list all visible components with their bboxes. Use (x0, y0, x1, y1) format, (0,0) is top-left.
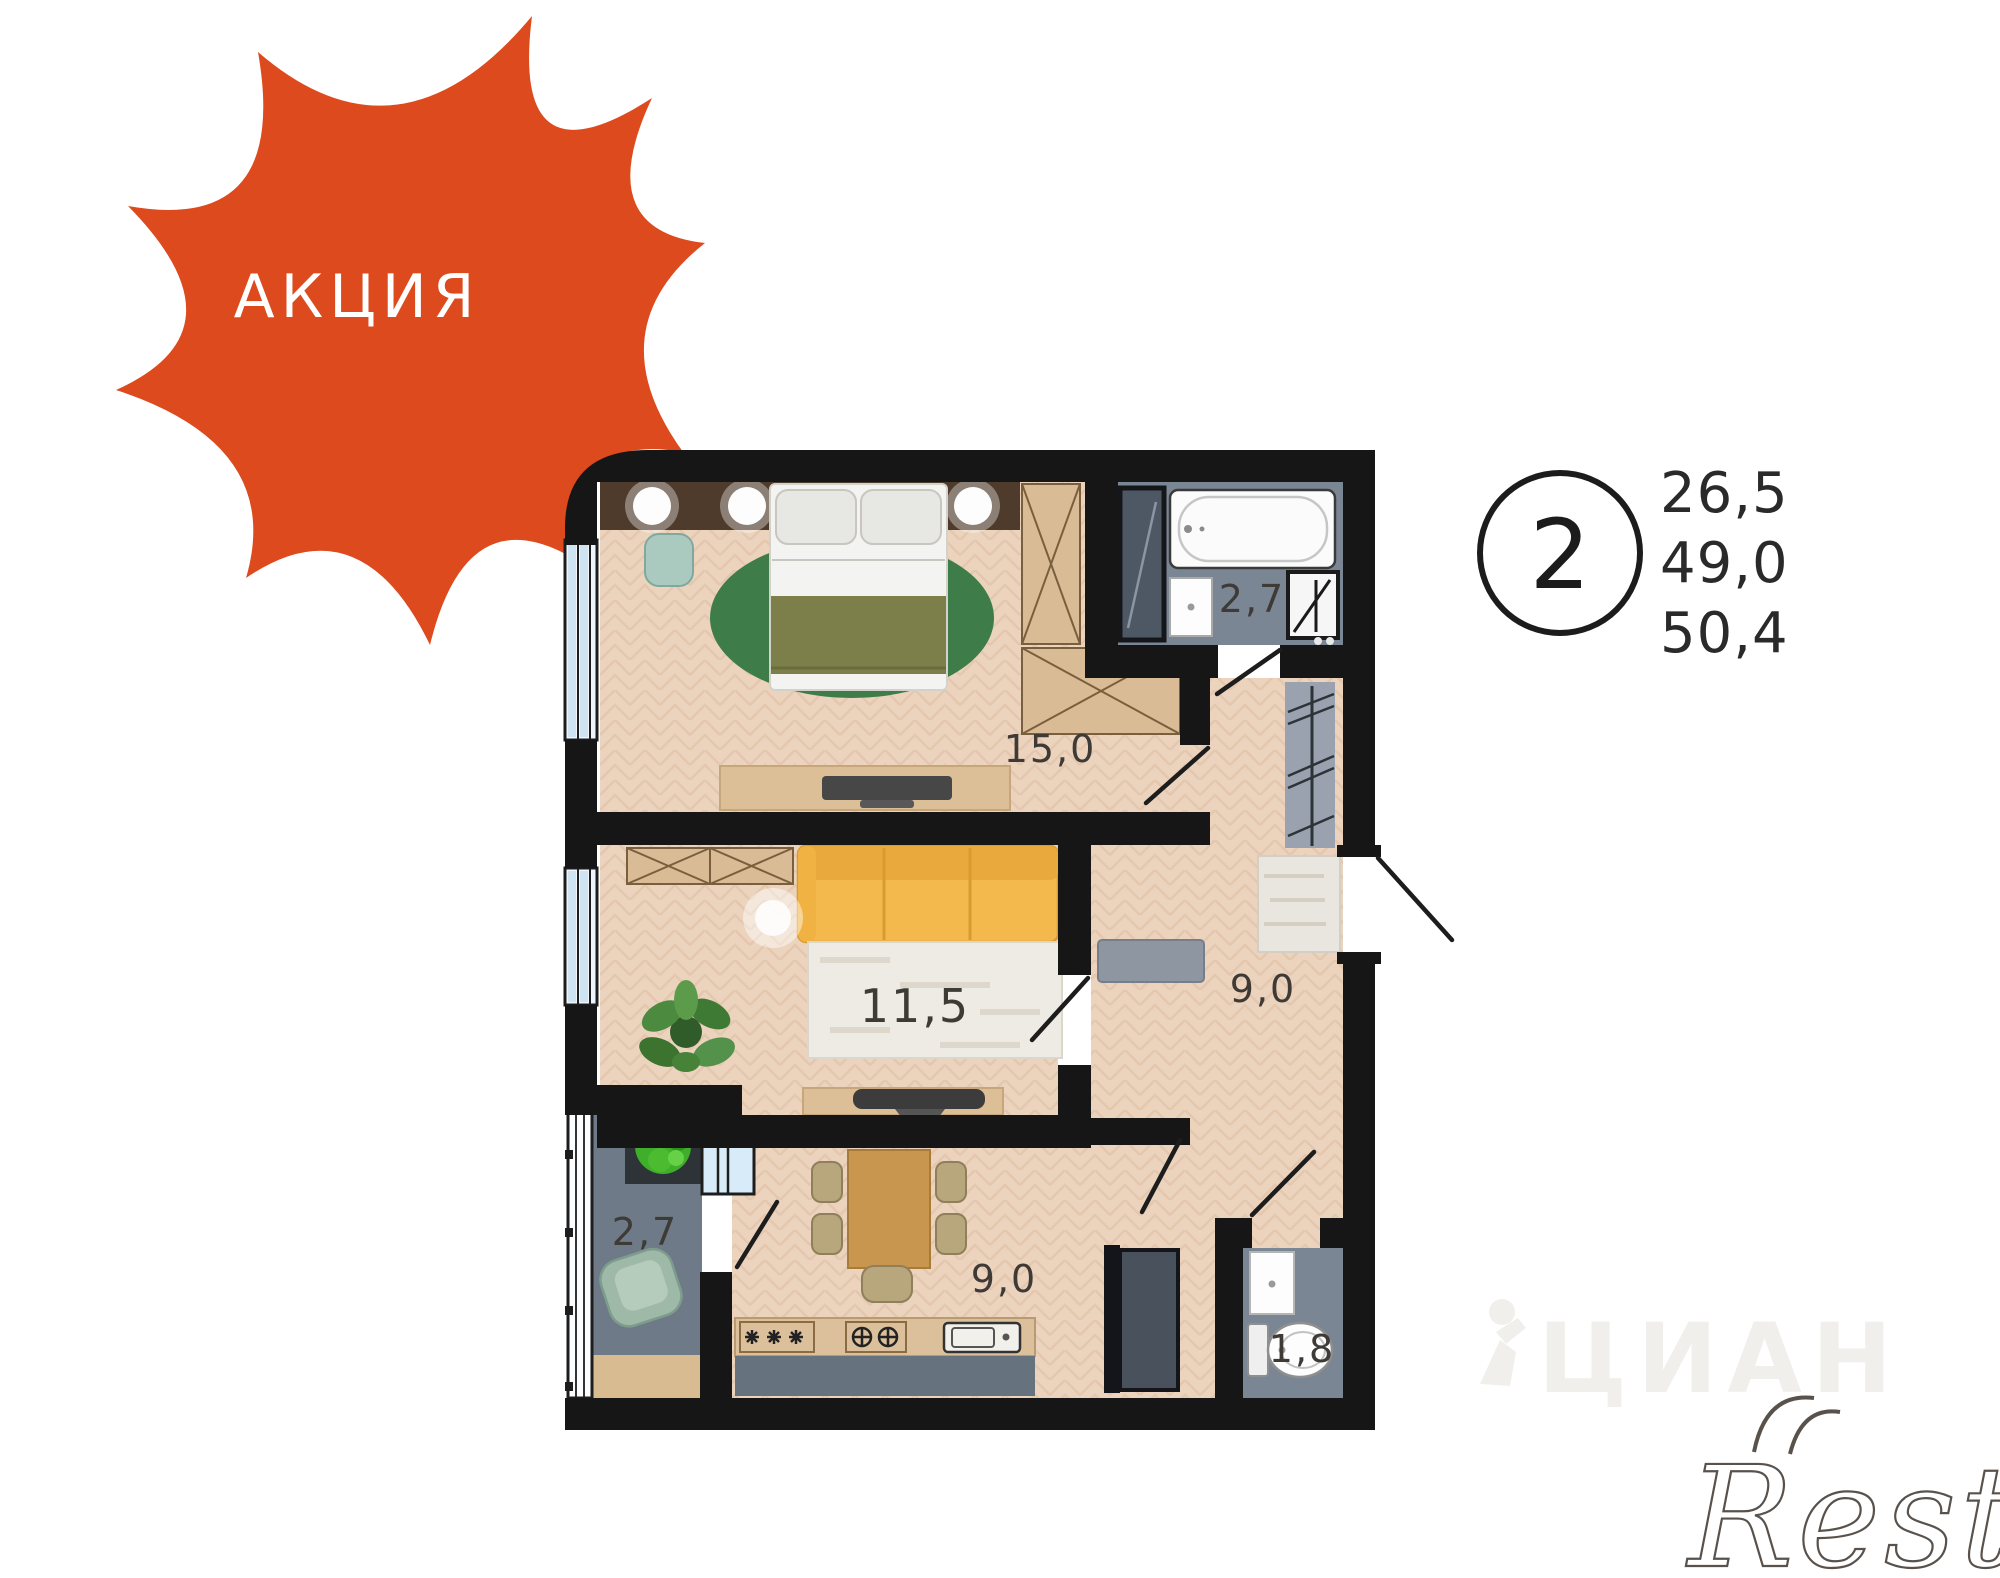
bathtub (1170, 490, 1335, 568)
cian-watermark-text: ЦИАН (1538, 1303, 1902, 1415)
balcony-floor-strip (590, 1355, 702, 1398)
hall-wardrobe (1285, 682, 1335, 848)
listing-image: АКЦИЯ (0, 0, 2000, 1578)
wc-sink (1250, 1252, 1294, 1314)
rooms-count-value: 2 (1529, 499, 1590, 611)
legend-area-1: 26,5 (1660, 461, 1789, 526)
balcony-glazing (565, 1113, 592, 1398)
kitchen-counter (735, 1318, 1035, 1396)
cian-logo-icon (1480, 1299, 1526, 1386)
legend-area-3: 50,4 (1660, 601, 1789, 666)
restate-watermark: Restate (1685, 1397, 2000, 1578)
hall-area-label: 9,0 (1230, 967, 1296, 1011)
promo-badge-label: АКЦИЯ (234, 262, 481, 332)
balcony-area-label: 2,7 (612, 1210, 678, 1254)
sofa (798, 846, 1058, 942)
bathroom-area-label: 2,7 (1219, 577, 1285, 621)
cian-watermark: ЦИАН (1480, 1299, 1902, 1415)
kitchen-area-label: 9,0 (971, 1257, 1037, 1301)
entry-doormat (1258, 856, 1340, 952)
fridge (1104, 1245, 1178, 1393)
bathroom-sink (1170, 578, 1212, 636)
legend: 2 26,5 49,0 50,4 (1480, 461, 1789, 666)
living-window (565, 868, 597, 1005)
bed (770, 484, 947, 690)
wc-area-label: 1,8 (1269, 1327, 1335, 1371)
legend-area-2: 49,0 (1660, 531, 1789, 596)
hall-bench (1098, 940, 1204, 982)
bedroom-window (565, 540, 597, 740)
entrance-door (1378, 858, 1452, 940)
bedroom-desk (720, 766, 1010, 810)
bedroom-area-label: 15,0 (1004, 727, 1097, 771)
bedroom-armchair (645, 534, 693, 586)
living-area-label: 11,5 (860, 979, 970, 1033)
washing-machine (1288, 572, 1338, 638)
restate-watermark-text: Restate (1685, 1437, 2000, 1578)
kitchen-sink (944, 1323, 1020, 1352)
floorplan-graphic: АКЦИЯ (0, 0, 2000, 1578)
living-wardrobe (627, 848, 793, 884)
